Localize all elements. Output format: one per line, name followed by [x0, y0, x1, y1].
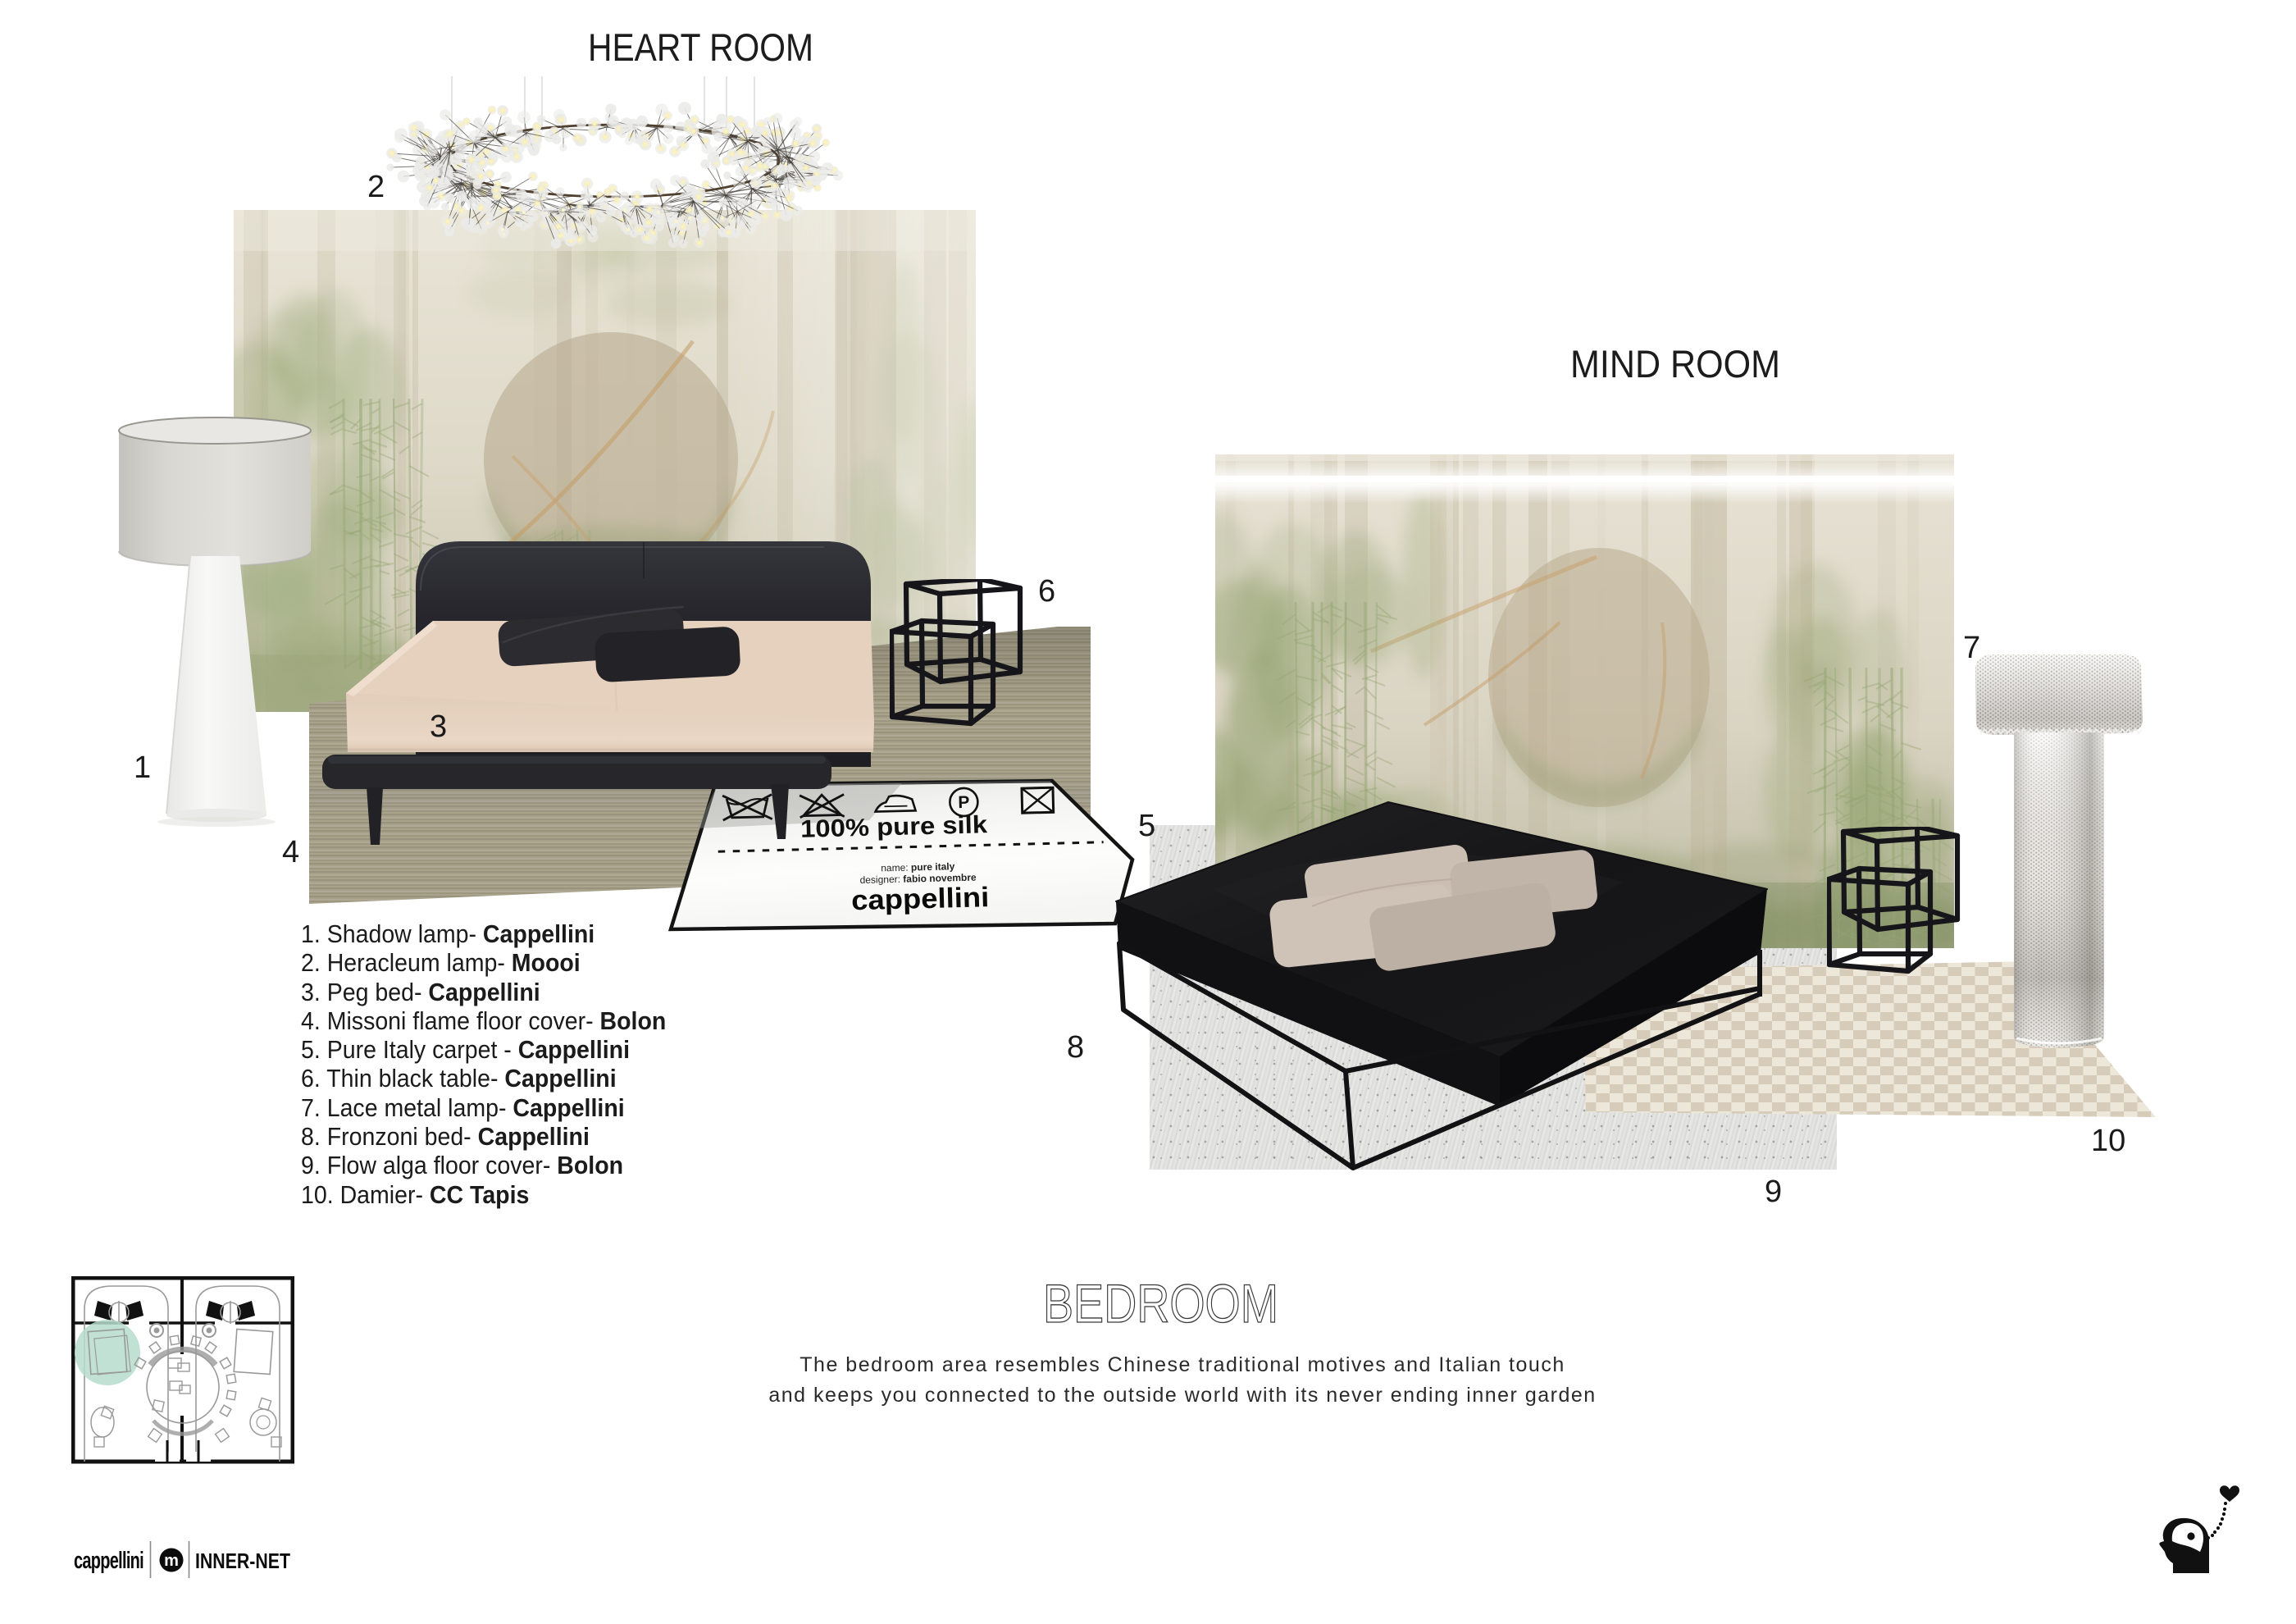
svg-text:cappellini: cappellini	[851, 882, 990, 916]
svg-text:INNER-NET: INNER-NET	[195, 1549, 290, 1573]
svg-text:BEDROOM: BEDROOM	[1043, 1273, 1278, 1334]
svg-text:P: P	[958, 793, 970, 812]
svg-text:m: m	[164, 1552, 179, 1570]
svg-text:MIND ROOM: MIND ROOM	[1570, 342, 1780, 385]
svg-text:cappellini: cappellini	[74, 1548, 143, 1574]
svg-text:HEART ROOM: HEART ROOM	[588, 25, 813, 69]
